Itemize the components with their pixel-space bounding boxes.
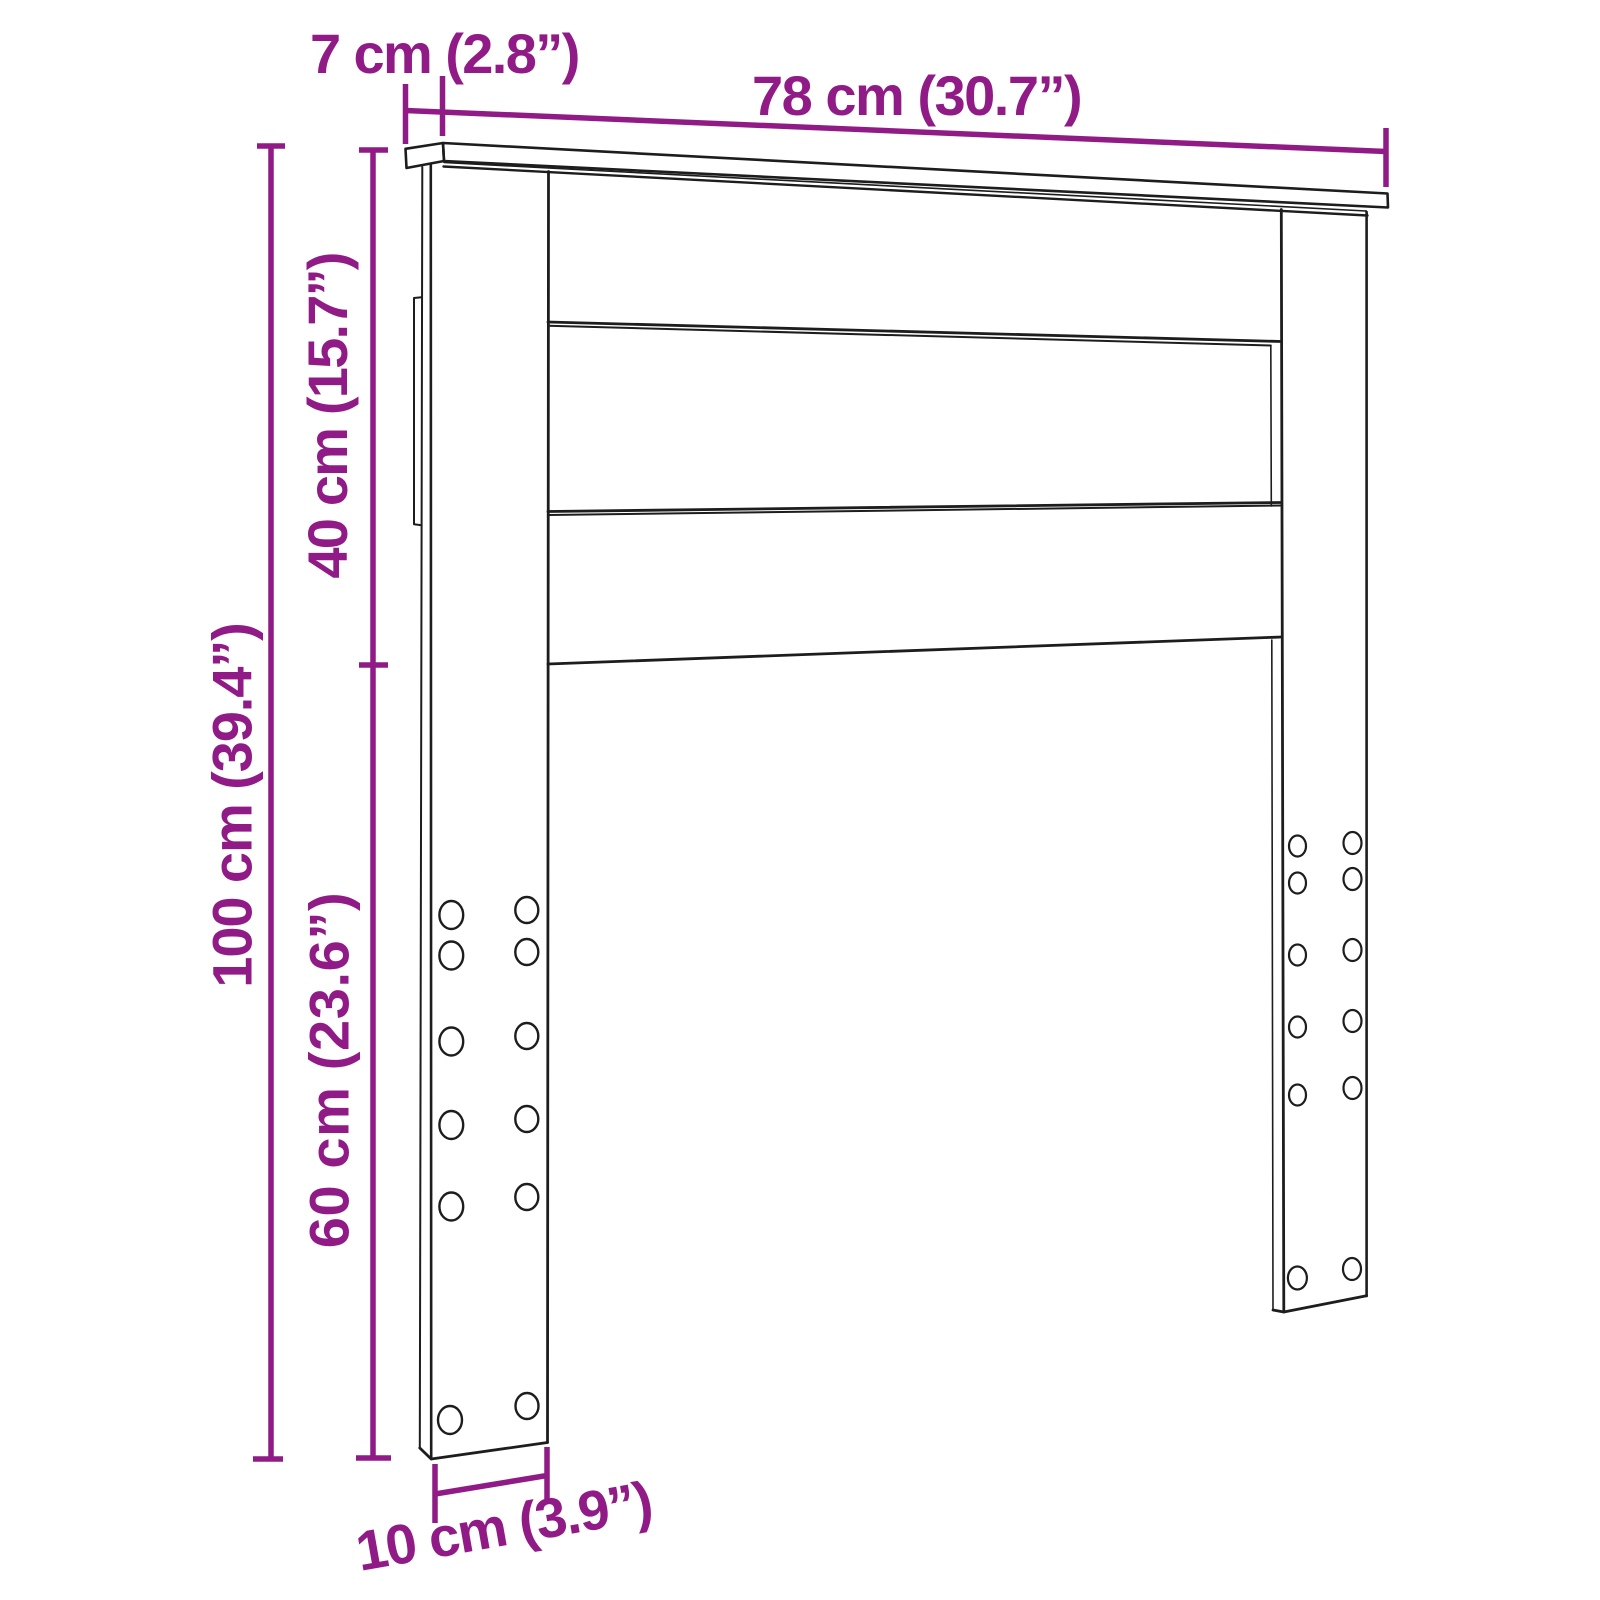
svg-text:100 cm (39.4”): 100 cm (39.4”) xyxy=(201,623,264,987)
svg-text:40 cm (15.7”): 40 cm (15.7”) xyxy=(296,253,359,578)
svg-text:7 cm (2.8”): 7 cm (2.8”) xyxy=(310,22,579,85)
svg-text:78 cm (30.7”): 78 cm (30.7”) xyxy=(752,64,1081,127)
svg-text:10 cm (3.9”): 10 cm (3.9”) xyxy=(351,1469,656,1583)
svg-text:60 cm (23.6”): 60 cm (23.6”) xyxy=(298,892,361,1248)
